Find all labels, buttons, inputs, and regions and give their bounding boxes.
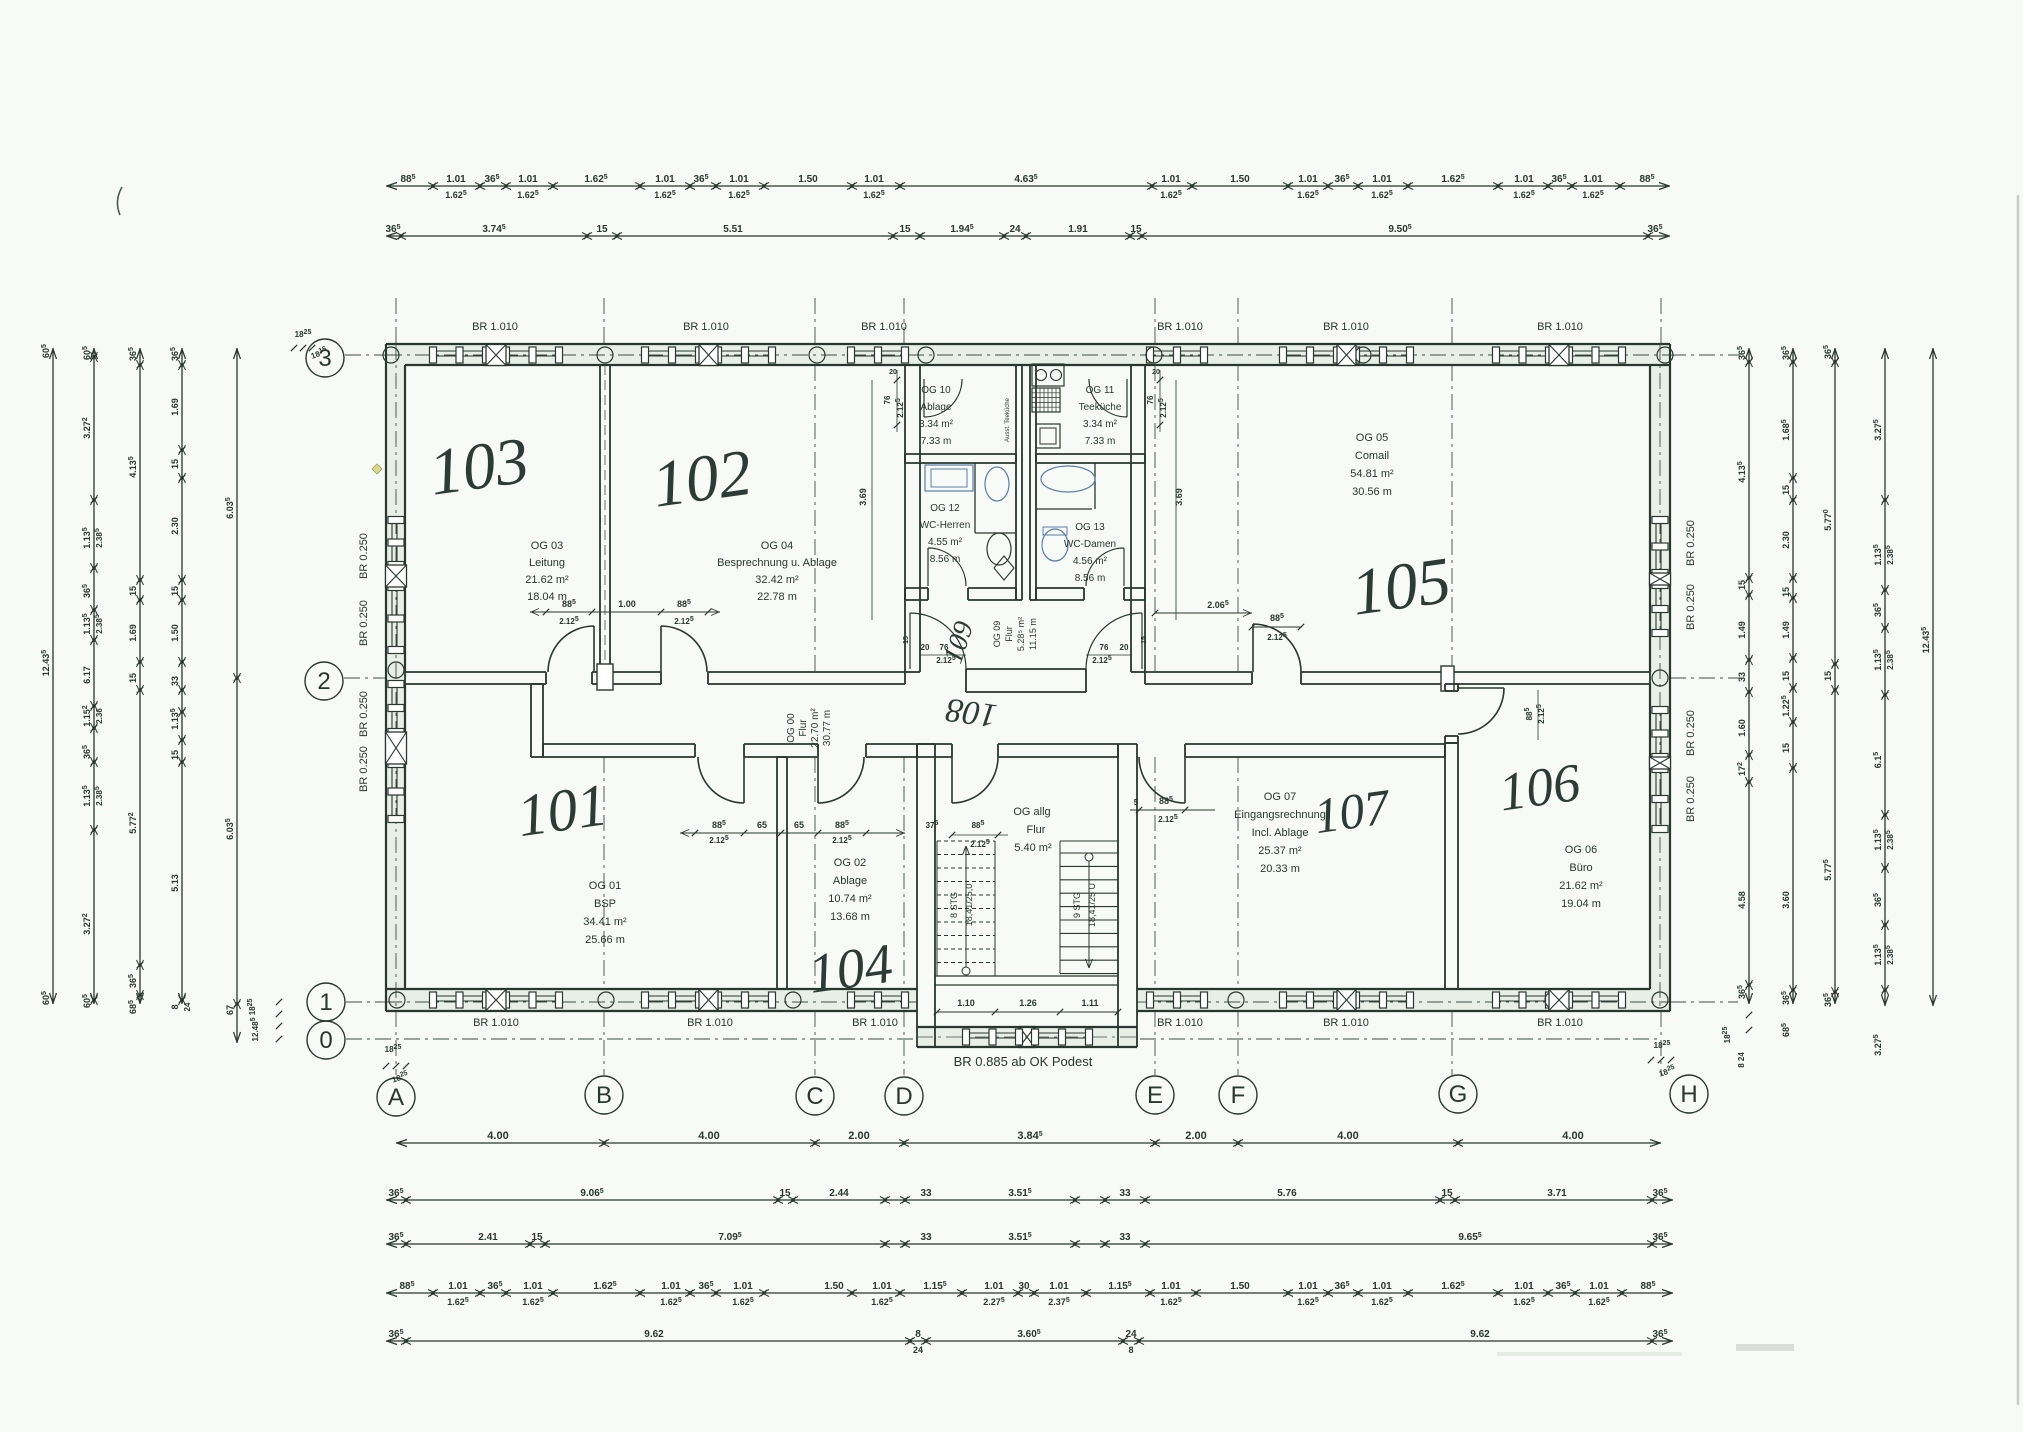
svg-text:4.55 m²: 4.55 m²	[928, 537, 963, 548]
svg-text:1.01: 1.01	[655, 174, 675, 185]
svg-text:102: 102	[648, 436, 756, 522]
svg-text:A: A	[388, 1084, 404, 1111]
svg-text:1.01: 1.01	[733, 1281, 753, 1292]
svg-text:BR 0.250: BR 0.250	[1685, 710, 1697, 756]
svg-text:33: 33	[920, 1232, 932, 1243]
svg-text:1.01: 1.01	[1589, 1281, 1609, 1292]
svg-text:1.50: 1.50	[170, 624, 180, 642]
svg-text:30: 30	[1018, 1281, 1030, 1292]
svg-text:15: 15	[1781, 743, 1791, 753]
svg-text:BR 0.885 ab OK Podest: BR 0.885 ab OK Podest	[954, 1054, 1093, 1069]
svg-text:1.49: 1.49	[1781, 621, 1791, 639]
svg-text:Ausst. Teeküche: Ausst. Teeküche	[1005, 397, 1011, 442]
svg-text:OG 10: OG 10	[921, 385, 951, 396]
svg-text:33: 33	[920, 1188, 932, 1199]
svg-text:1.01: 1.01	[1372, 1281, 1392, 1292]
svg-text:Incl. Ablage: Incl. Ablage	[1252, 827, 1309, 839]
svg-text:D: D	[895, 1083, 912, 1110]
svg-text:103: 103	[425, 424, 533, 510]
svg-text:Leitung: Leitung	[529, 557, 565, 569]
svg-text:OG 00: OG 00	[786, 713, 797, 743]
svg-text:15: 15	[903, 636, 910, 644]
svg-text:5.40 m²: 5.40 m²	[1014, 842, 1052, 854]
svg-text:BR 1.010: BR 1.010	[1157, 321, 1203, 333]
svg-text:18,41/25,0: 18,41/25,0	[964, 884, 974, 927]
svg-text:4.00: 4.00	[1562, 1130, 1583, 1142]
svg-text:15: 15	[1441, 1188, 1453, 1199]
svg-text:7.33 m: 7.33 m	[1085, 436, 1116, 447]
svg-text:OG 09: OG 09	[992, 621, 1002, 648]
svg-text:OG allg: OG allg	[1013, 806, 1050, 818]
svg-text:101: 101	[513, 771, 611, 849]
svg-text:15: 15	[170, 459, 180, 469]
svg-text:BR 1.010: BR 1.010	[1323, 1017, 1369, 1029]
svg-text:1.49: 1.49	[1737, 621, 1747, 639]
svg-text:108: 108	[944, 691, 1000, 735]
svg-text:33: 33	[170, 676, 180, 686]
svg-text:1.26: 1.26	[1019, 998, 1037, 1008]
svg-text:1.01: 1.01	[661, 1281, 681, 1292]
svg-text:1.11: 1.11	[1081, 998, 1098, 1008]
svg-text:BR 1.010: BR 1.010	[683, 321, 729, 333]
svg-text:8: 8	[170, 1004, 180, 1009]
svg-text:107: 107	[1311, 778, 1395, 844]
svg-text:5.76: 5.76	[1277, 1188, 1297, 1199]
svg-text:11.15 m: 11.15 m	[1028, 618, 1038, 650]
svg-text:1.01: 1.01	[523, 1281, 543, 1292]
svg-text:1.01: 1.01	[1583, 174, 1603, 185]
svg-text:3.34 m²: 3.34 m²	[1083, 419, 1118, 430]
svg-text:20: 20	[1152, 369, 1160, 376]
svg-text:2: 2	[317, 668, 330, 695]
svg-text:9.62: 9.62	[644, 1329, 664, 1340]
svg-text:WC-Herren: WC-Herren	[920, 520, 971, 531]
svg-text:BR 1.010: BR 1.010	[1537, 1017, 1583, 1029]
svg-text:22.78 m: 22.78 m	[757, 591, 797, 603]
svg-text:2.44: 2.44	[829, 1188, 849, 1199]
svg-text:Eingangsrechnung: Eingangsrechnung	[1234, 809, 1326, 821]
svg-text:1.91: 1.91	[1068, 224, 1088, 235]
svg-text:Flur: Flur	[798, 719, 809, 737]
svg-text:Flur: Flur	[1027, 824, 1046, 836]
svg-text:OG 02: OG 02	[834, 857, 866, 869]
svg-text:BR 1.010: BR 1.010	[473, 1017, 519, 1029]
svg-text:21.62 m²: 21.62 m²	[525, 574, 569, 586]
svg-text:34.41 m²: 34.41 m²	[583, 916, 627, 928]
svg-text:Teeküche: Teeküche	[1079, 402, 1122, 413]
svg-text:104: 104	[805, 933, 897, 1006]
svg-text:25.37 m²: 25.37 m²	[1258, 845, 1302, 857]
svg-text:15: 15	[128, 586, 138, 596]
svg-text:1.01: 1.01	[1514, 174, 1534, 185]
svg-text:4.56 m²: 4.56 m²	[1073, 556, 1108, 567]
svg-text:4.00: 4.00	[698, 1130, 719, 1142]
svg-text:1: 1	[319, 989, 332, 1016]
svg-text:Ablage: Ablage	[833, 875, 867, 887]
svg-text:1.50: 1.50	[824, 1281, 844, 1292]
svg-text:1.50: 1.50	[1230, 1281, 1250, 1292]
svg-text:15: 15	[170, 586, 180, 596]
svg-text:33: 33	[1119, 1188, 1131, 1199]
svg-text:BSP: BSP	[594, 898, 616, 910]
svg-text:BR 1.010: BR 1.010	[472, 321, 518, 333]
svg-text:24: 24	[1125, 1329, 1137, 1340]
svg-text:2.30: 2.30	[1781, 531, 1791, 549]
svg-text:24: 24	[1009, 224, 1021, 235]
svg-text:8: 8	[1128, 1345, 1133, 1355]
svg-text:8 24: 8 24	[1737, 1052, 1746, 1068]
svg-text:18,41/25 U: 18,41/25 U	[1087, 883, 1097, 927]
svg-text:OG 06: OG 06	[1565, 844, 1597, 856]
svg-text:OG 04: OG 04	[761, 540, 793, 552]
svg-text:BR 0.250: BR 0.250	[1685, 776, 1697, 822]
svg-text:BR 0.250: BR 0.250	[358, 600, 370, 646]
svg-text:20: 20	[921, 643, 930, 652]
svg-text:7.33 m: 7.33 m	[921, 436, 952, 447]
svg-text:8: 8	[915, 1329, 921, 1340]
svg-text:1.01: 1.01	[1298, 1281, 1318, 1292]
svg-text:8 STG: 8 STG	[949, 892, 959, 918]
svg-text:1.50: 1.50	[1230, 174, 1250, 185]
svg-text:24: 24	[183, 1002, 192, 1011]
svg-text:Büro: Büro	[1569, 862, 1592, 874]
svg-text:1.10: 1.10	[957, 998, 975, 1008]
svg-text:G: G	[1449, 1081, 1468, 1108]
svg-text:76: 76	[1146, 395, 1155, 404]
svg-text:33: 33	[1119, 1232, 1131, 1243]
svg-text:BR 1.010: BR 1.010	[1323, 321, 1369, 333]
svg-text:OG 03: OG 03	[531, 540, 563, 552]
svg-text:15: 15	[1737, 580, 1747, 590]
svg-text:2.30: 2.30	[170, 517, 180, 535]
svg-text:E: E	[1147, 1082, 1163, 1109]
svg-text:18.04 m: 18.04 m	[527, 591, 567, 603]
svg-text:65: 65	[757, 820, 767, 830]
svg-text:20: 20	[1120, 643, 1129, 652]
svg-text:1.01: 1.01	[1161, 1281, 1181, 1292]
svg-text:OG 12: OG 12	[930, 503, 960, 514]
svg-text:30.56 m: 30.56 m	[1352, 486, 1392, 498]
svg-text:BR 0.250: BR 0.250	[358, 746, 370, 792]
svg-text:10.74 m²: 10.74 m²	[828, 893, 872, 905]
svg-text:1.01: 1.01	[448, 1281, 468, 1292]
svg-text:25.66 m: 25.66 m	[585, 934, 625, 946]
svg-text:21.62 m²: 21.62 m²	[1559, 880, 1603, 892]
svg-text:15: 15	[1781, 587, 1791, 597]
svg-text:BR 1.010: BR 1.010	[1537, 321, 1583, 333]
svg-text:8.56 m: 8.56 m	[930, 554, 961, 565]
svg-text:BR 0.250: BR 0.250	[1685, 520, 1697, 566]
svg-text:2.00: 2.00	[848, 1130, 869, 1142]
svg-text:OG 13: OG 13	[1075, 522, 1105, 533]
svg-text:OG 05: OG 05	[1356, 432, 1388, 444]
svg-text:5: 5	[1134, 798, 1139, 807]
svg-text:1.01: 1.01	[872, 1281, 892, 1292]
svg-text:3.69: 3.69	[1174, 488, 1184, 506]
svg-text:9.62: 9.62	[1470, 1329, 1490, 1340]
svg-text:1.00: 1.00	[618, 599, 636, 609]
svg-text:5.51: 5.51	[723, 224, 743, 235]
svg-text:106: 106	[1495, 752, 1584, 823]
svg-text:13.68 m: 13.68 m	[830, 911, 870, 923]
svg-text:1.01: 1.01	[1049, 1281, 1069, 1292]
svg-text:2.41: 2.41	[478, 1232, 498, 1243]
svg-text:2.36: 2.36	[95, 708, 104, 724]
svg-text:3.71: 3.71	[1547, 1188, 1567, 1199]
svg-text:1.01: 1.01	[864, 174, 884, 185]
svg-text:5.13: 5.13	[170, 874, 180, 892]
svg-text:4.58: 4.58	[1737, 891, 1747, 909]
svg-text:76: 76	[940, 643, 949, 652]
svg-text:15: 15	[170, 750, 180, 760]
svg-text:2.00: 2.00	[1185, 1130, 1206, 1142]
svg-text:1.01: 1.01	[729, 174, 749, 185]
svg-text:BR 0.250: BR 0.250	[358, 533, 370, 579]
svg-text:22.70 m²: 22.70 m²	[810, 708, 821, 748]
svg-text:67: 67	[225, 1005, 235, 1015]
svg-text:1.01: 1.01	[518, 174, 538, 185]
svg-text:1.01: 1.01	[984, 1281, 1004, 1292]
svg-text:76: 76	[1100, 643, 1109, 652]
svg-text:15: 15	[899, 224, 911, 235]
svg-text:Flur: Flur	[1004, 626, 1014, 642]
svg-text:1.01: 1.01	[1298, 174, 1318, 185]
svg-text:105: 105	[1347, 544, 1455, 630]
svg-text:24: 24	[913, 1345, 923, 1355]
svg-text:19.04 m: 19.04 m	[1561, 898, 1601, 910]
svg-text:WC-Damen: WC-Damen	[1064, 539, 1116, 550]
svg-text:C: C	[806, 1083, 823, 1110]
svg-text:BR 1.010: BR 1.010	[687, 1017, 733, 1029]
svg-text:F: F	[1231, 1082, 1246, 1109]
svg-text:76: 76	[883, 395, 892, 404]
svg-text:8.56 m: 8.56 m	[1075, 573, 1106, 584]
svg-text:Besprechnung u. Ablage: Besprechnung u. Ablage	[717, 557, 837, 569]
svg-text:BR 0.250: BR 0.250	[1685, 584, 1697, 630]
svg-text:Comail: Comail	[1355, 450, 1389, 462]
svg-text:32.42 m²: 32.42 m²	[755, 574, 799, 586]
svg-text:Ablage: Ablage	[920, 402, 952, 413]
svg-text:5.28⁵ m²: 5.28⁵ m²	[1016, 617, 1026, 651]
svg-text:OG 11: OG 11	[1086, 385, 1115, 396]
svg-text:15: 15	[1781, 671, 1791, 681]
svg-text:9 STG: 9 STG	[1072, 892, 1082, 918]
svg-text:6.17: 6.17	[82, 666, 92, 684]
svg-text:3.69: 3.69	[858, 488, 868, 506]
svg-text:15: 15	[1141, 636, 1148, 644]
svg-text:0: 0	[319, 1027, 332, 1054]
svg-text:1.60: 1.60	[1737, 719, 1747, 737]
svg-text:4.00: 4.00	[1337, 1130, 1358, 1142]
svg-text:33: 33	[1737, 672, 1747, 682]
svg-text:1.69: 1.69	[170, 398, 180, 416]
svg-text:H: H	[1680, 1081, 1697, 1108]
svg-text:15: 15	[1781, 485, 1791, 495]
svg-text:15: 15	[1130, 224, 1142, 235]
svg-text:15: 15	[596, 224, 608, 235]
svg-text:30.77 m: 30.77 m	[822, 710, 833, 746]
svg-text:1.01: 1.01	[1514, 1281, 1534, 1292]
svg-text:15: 15	[779, 1188, 791, 1199]
svg-text:BR 0.250: BR 0.250	[358, 691, 370, 737]
svg-text:20.33 m: 20.33 m	[1260, 863, 1300, 875]
svg-text:15: 15	[1823, 671, 1833, 681]
svg-text:1.01: 1.01	[446, 174, 466, 185]
svg-text:BR 1.010: BR 1.010	[861, 321, 907, 333]
svg-text:OG 01: OG 01	[589, 880, 621, 892]
svg-text:4.00: 4.00	[487, 1130, 508, 1142]
svg-text:20: 20	[889, 369, 897, 376]
svg-text:OG 07: OG 07	[1264, 791, 1296, 803]
svg-text:15: 15	[531, 1232, 543, 1243]
svg-text:65: 65	[794, 820, 804, 830]
svg-text:1.01: 1.01	[1372, 174, 1392, 185]
svg-text:1.01: 1.01	[1161, 174, 1181, 185]
svg-text:B: B	[596, 1082, 612, 1109]
svg-text:3.60: 3.60	[1781, 891, 1791, 909]
svg-text:54.81 m²: 54.81 m²	[1350, 468, 1394, 480]
svg-text:1.69: 1.69	[128, 624, 138, 642]
svg-text:BR 1.010: BR 1.010	[1157, 1017, 1203, 1029]
svg-text:1.50: 1.50	[798, 174, 818, 185]
svg-text:15: 15	[128, 673, 138, 683]
svg-text:BR 1.010: BR 1.010	[852, 1017, 898, 1029]
svg-text:3.34 m²: 3.34 m²	[919, 419, 954, 430]
